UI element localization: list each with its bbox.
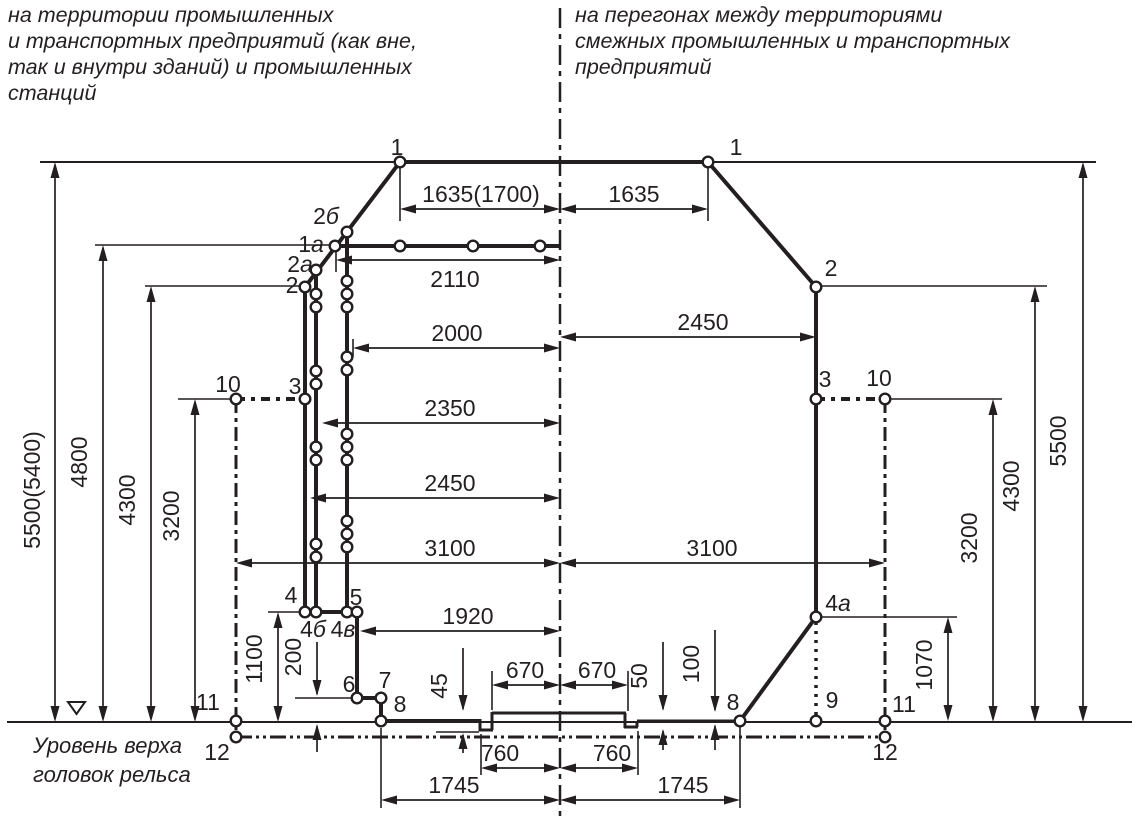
arrowhead-down: [711, 696, 720, 712]
dimension-v-1100: 1100: [241, 612, 283, 722]
dim-label: 2450: [424, 470, 475, 496]
arrowhead-down: [274, 706, 283, 722]
arrowhead-up: [944, 617, 953, 633]
dimension-h-1635: 1635: [560, 181, 708, 214]
dim-label: 2350: [424, 395, 475, 421]
dimension-h-3100: 3100: [560, 535, 885, 568]
dim-label: 50: [626, 663, 652, 689]
line: [708, 162, 816, 287]
arrowhead-down: [1031, 706, 1040, 722]
point-marker: [231, 716, 242, 727]
arrowhead-right: [544, 256, 560, 265]
point-marker: [231, 732, 242, 743]
arrowhead-right: [544, 559, 560, 568]
arrowhead-down: [944, 705, 953, 721]
dim-label: 5500(5400): [19, 431, 45, 549]
arrowhead-up: [989, 399, 998, 415]
dim-label: 4300: [114, 474, 140, 525]
arrowhead-left: [322, 419, 338, 428]
arrowhead-left: [560, 333, 576, 342]
dimension-h-1635(1700): 1635(1700): [400, 181, 560, 214]
point-label-1: 1: [391, 134, 404, 160]
arrowhead-down: [989, 706, 998, 722]
point-marker: [376, 716, 387, 727]
arrowhead-left: [560, 559, 576, 568]
point-marker: [342, 302, 353, 313]
arrowhead-down: [459, 695, 468, 711]
point-marker: [342, 276, 353, 287]
arrowhead-right: [544, 205, 560, 214]
arrowhead-right: [724, 796, 740, 805]
arrowhead-right: [544, 627, 560, 636]
dim-label: 4800: [66, 436, 92, 487]
arrowhead-down: [313, 680, 322, 696]
arrowhead-left: [400, 205, 416, 214]
arrowhead-up: [99, 245, 108, 261]
point-marker: [342, 529, 353, 540]
arrowhead-left: [360, 627, 376, 636]
dimension-split-200: 200: [280, 638, 322, 752]
point-marker: [395, 241, 406, 252]
arrowhead-left: [381, 796, 397, 805]
point-marker: [342, 429, 353, 440]
arrowhead-left: [336, 256, 352, 265]
arrowhead-down: [99, 706, 108, 722]
dimension-h-760: 760: [481, 740, 560, 773]
dim-label: 45: [426, 673, 452, 699]
dimension-h-2350: 2350: [322, 395, 560, 428]
dim-label: 1745: [428, 772, 479, 798]
ground-level-marker-icon: [68, 702, 85, 714]
arrowhead-up: [1031, 286, 1040, 302]
dim-label: 670: [506, 657, 544, 683]
point-label-3: 3: [289, 373, 302, 399]
point-label-10: 10: [866, 365, 892, 391]
dim-label: 5500: [1045, 415, 1071, 466]
arrowhead-left: [560, 205, 576, 214]
arrowhead-left: [560, 764, 576, 773]
point-marker: [342, 289, 353, 300]
point-label-4в: 4в: [331, 616, 356, 642]
ground-marker: [68, 702, 85, 714]
arrowhead-right: [800, 333, 816, 342]
point-label-1: 1: [730, 134, 743, 160]
dim-label: 1070: [911, 639, 937, 690]
dim-label: 4300: [998, 460, 1024, 511]
dimension-h-1745: 1745: [381, 772, 560, 805]
dimension-v-3200: 3200: [158, 399, 200, 722]
arrowhead-down: [51, 706, 60, 722]
axis-lines: [236, 8, 885, 822]
arrowhead-down: [1079, 706, 1088, 722]
dim-label: 3100: [686, 535, 737, 561]
arrowhead-up: [51, 162, 60, 178]
arrowhead-down: [147, 706, 156, 722]
point-label-8: 8: [394, 691, 407, 717]
point-label-6: 6: [343, 671, 356, 697]
dimension-v-4300: 4300: [998, 286, 1040, 722]
dim-label: 1745: [657, 772, 708, 798]
arrowhead-up: [191, 399, 200, 415]
dimension-h-760: 760: [560, 740, 638, 773]
point-marker: [311, 366, 322, 377]
point-marker: [342, 455, 353, 466]
dimension-v-5500: 5500: [1045, 162, 1088, 722]
dimension-h-2450: 2450: [560, 309, 816, 342]
dimension-v-1070: 1070: [911, 617, 953, 721]
dim-label: 2450: [677, 309, 728, 335]
dim-label: 1635: [608, 181, 659, 207]
point-label-9: 9: [826, 687, 839, 713]
point-label-4а: 4а: [825, 590, 851, 616]
point-marker: [880, 716, 891, 727]
clearance-gauge-diagram: на территории промышленных и транспортны…: [0, 0, 1139, 827]
point-marker: [330, 241, 341, 252]
point-marker: [811, 612, 822, 623]
arrowhead-left: [560, 681, 576, 690]
dim-label: 100: [678, 645, 704, 683]
point-label-11: 11: [892, 691, 916, 717]
point-marker: [342, 516, 353, 527]
arrowhead-up: [274, 612, 283, 628]
arrowhead-up: [711, 724, 720, 740]
dim-label: 670: [578, 657, 616, 683]
dimension-h-2110: 2110: [336, 256, 560, 293]
dim-label: 3100: [424, 535, 475, 561]
point-label-12: 12: [872, 739, 898, 765]
dimension-h-3100: 3100: [236, 535, 560, 568]
point-marker: [376, 693, 387, 704]
point-label-5: 5: [350, 584, 363, 610]
point-marker: [311, 379, 322, 390]
arrowhead-right: [692, 205, 708, 214]
point-label-11: 11: [196, 689, 220, 715]
dim-label: 1635(1700): [422, 181, 540, 207]
point-marker: [311, 539, 322, 550]
line: [740, 617, 816, 721]
dim-label: 1100: [241, 634, 267, 683]
dimension-split-50: 50: [626, 642, 668, 750]
point-marker: [811, 394, 822, 405]
point-label-2: 2: [825, 255, 838, 281]
arrowhead-right: [544, 764, 560, 773]
dim-label: 3200: [158, 490, 184, 541]
arrowhead-up: [313, 724, 322, 740]
arrowhead-right: [544, 681, 560, 690]
point-marker: [311, 302, 322, 313]
point-label-8: 8: [727, 689, 740, 715]
dimension-v-3200: 3200: [956, 399, 998, 722]
dimension-split-100: 100: [678, 630, 720, 750]
arrowhead-down: [659, 695, 668, 711]
point-marker: [342, 352, 353, 363]
reference-lines: [7, 162, 1132, 722]
point-marker: [703, 157, 714, 168]
point-marker: [468, 241, 479, 252]
arrowhead-left: [353, 344, 369, 353]
arrowhead-left: [560, 796, 576, 805]
point-label-4: 4: [285, 582, 298, 608]
point-marker: [311, 552, 322, 563]
point-label-10: 10: [215, 371, 241, 397]
point-marker: [535, 241, 546, 252]
dimension-v-4800: 4800: [66, 245, 108, 722]
point-marker: [342, 227, 353, 238]
dimension-h-670: 670: [492, 657, 560, 690]
arrowhead-right: [544, 494, 560, 503]
arrowhead-right: [869, 559, 885, 568]
dimension-h-1920: 1920: [360, 603, 560, 636]
dim-label: 3200: [956, 512, 982, 563]
point-label-2б: 2б: [313, 203, 340, 229]
point-label-2: 2: [286, 272, 299, 298]
arrowhead-right: [544, 344, 560, 353]
dimension-v-5500(5400): 5500(5400): [19, 162, 60, 722]
dim-label: 760: [593, 740, 631, 766]
dim-label: 1920: [442, 603, 493, 629]
dimension-h-2000: 2000: [353, 320, 560, 353]
dim-label: 2110: [430, 266, 479, 292]
point-marker: [300, 282, 311, 293]
arrowhead-up: [147, 286, 156, 302]
dimension-h-1745: 1745: [560, 772, 740, 805]
arrowhead-up: [1079, 162, 1088, 178]
dimension-h-670: 670: [560, 657, 628, 690]
point-label-7: 7: [379, 667, 392, 693]
arrowhead-right: [544, 796, 560, 805]
point-marker: [811, 716, 822, 727]
point-marker: [811, 282, 822, 293]
point-marker: [342, 442, 353, 453]
diagram-canvas: 1635(1700)163521102000235024503100245031…: [0, 0, 1139, 827]
dim-label: 200: [280, 638, 306, 676]
point-marker: [735, 716, 746, 727]
point-marker: [311, 289, 322, 300]
dimension-v-4300: 4300: [114, 286, 156, 722]
point-marker: [311, 455, 322, 466]
point-marker: [880, 394, 891, 405]
arrowhead-left: [236, 559, 252, 568]
point-label-12: 12: [204, 739, 230, 765]
point-marker: [342, 365, 353, 376]
arrowhead-right: [544, 419, 560, 428]
point-marker: [311, 442, 322, 453]
arrowhead-up: [459, 733, 468, 749]
dim-label: 2000: [431, 320, 482, 346]
point-label-3: 3: [819, 366, 832, 392]
point-label-4б: 4б: [300, 616, 327, 642]
point-marker: [342, 542, 353, 553]
dim-label: 760: [481, 740, 519, 766]
